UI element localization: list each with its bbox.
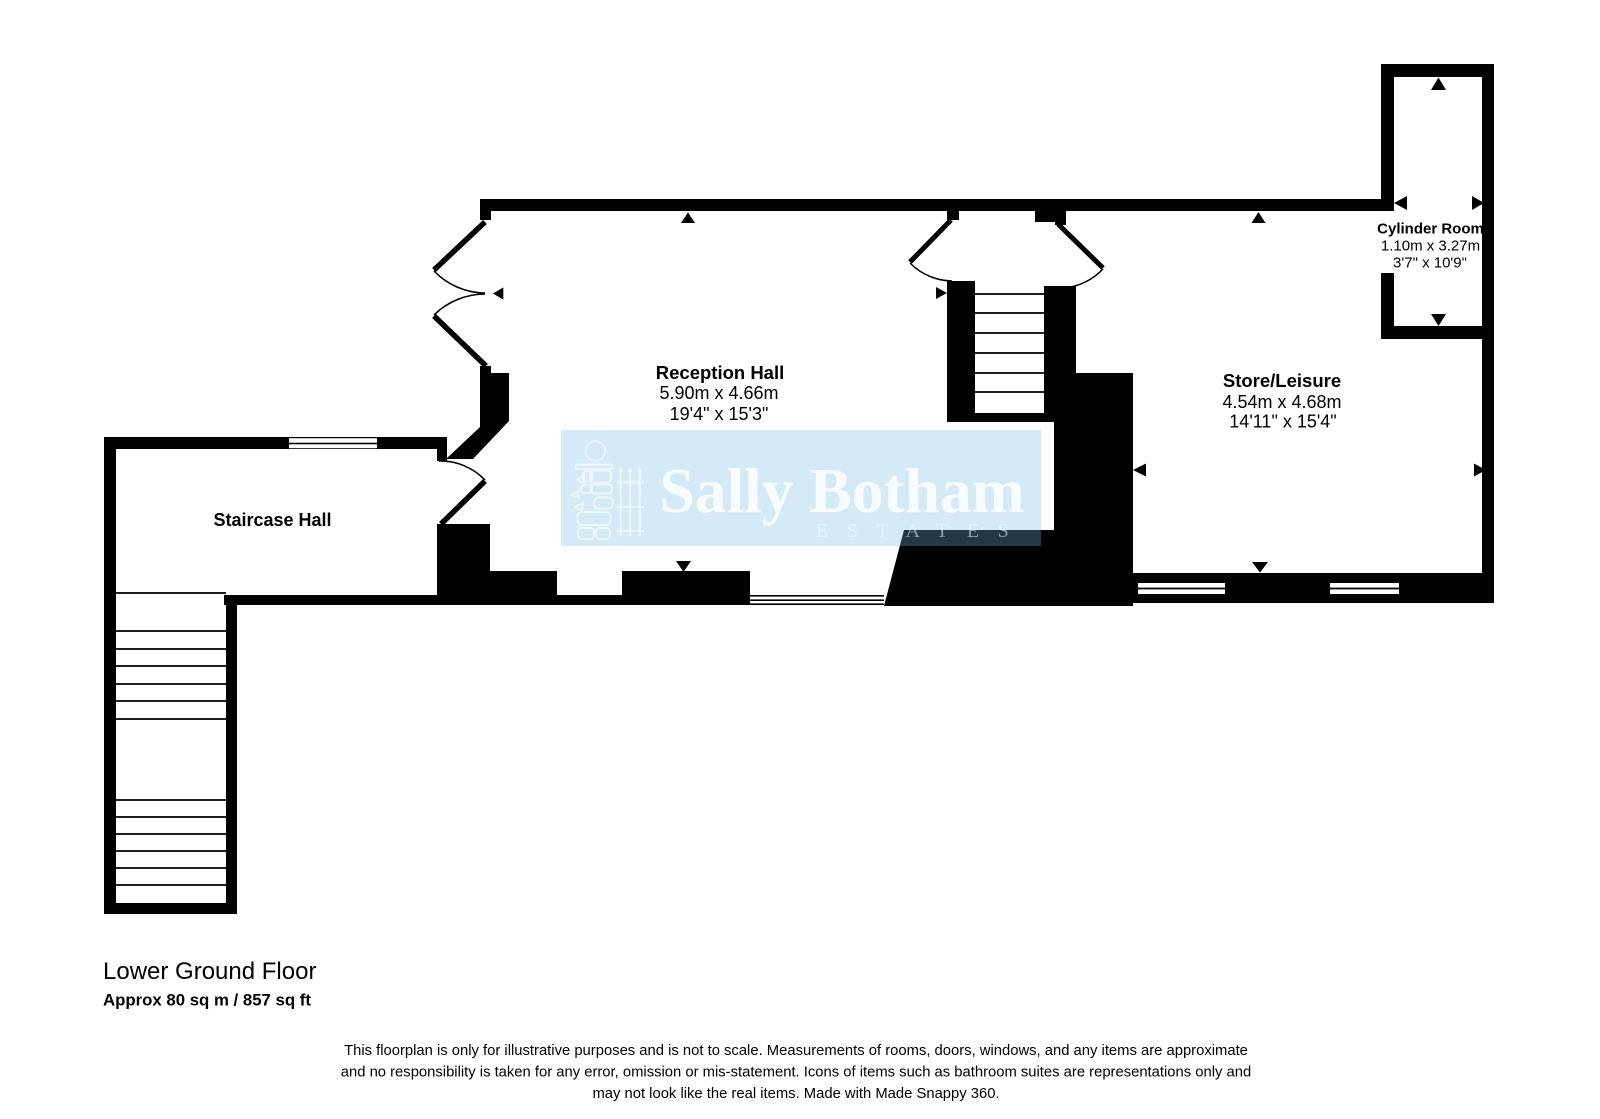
svg-text:1.10m x 3.27m: 1.10m x 3.27m bbox=[1381, 238, 1480, 255]
svg-text:Sally Botham: Sally Botham bbox=[659, 455, 1024, 526]
svg-text:and no responsibility is taken: and no responsibility is taken for any e… bbox=[341, 1065, 1251, 1081]
svg-text:5.90m x 4.66m: 5.90m x 4.66m bbox=[659, 383, 778, 403]
svg-text:This floorplan is only for ill: This floorplan is only for illustrative … bbox=[344, 1043, 1248, 1059]
svg-text:ESTATES: ESTATES bbox=[816, 520, 1027, 542]
svg-text:Store/Leisure: Store/Leisure bbox=[1223, 370, 1341, 391]
svg-text:Cylinder Room: Cylinder Room bbox=[1377, 221, 1484, 238]
svg-text:3'7" x 10'9": 3'7" x 10'9" bbox=[1393, 255, 1467, 272]
svg-text:4.54m x 4.68m: 4.54m x 4.68m bbox=[1222, 392, 1341, 412]
svg-text:may not look like the real ite: may not look like the real items. Made w… bbox=[592, 1086, 999, 1102]
svg-text:Lower Ground Floor: Lower Ground Floor bbox=[103, 958, 316, 985]
svg-text:Approx 80 sq m / 857 sq ft: Approx 80 sq m / 857 sq ft bbox=[103, 991, 311, 1010]
svg-text:19'4" x 15'3": 19'4" x 15'3" bbox=[670, 404, 769, 424]
svg-text:Reception Hall: Reception Hall bbox=[656, 362, 785, 383]
svg-text:14'11" x 15'4": 14'11" x 15'4" bbox=[1229, 412, 1336, 432]
svg-text:Staircase Hall: Staircase Hall bbox=[213, 510, 331, 530]
